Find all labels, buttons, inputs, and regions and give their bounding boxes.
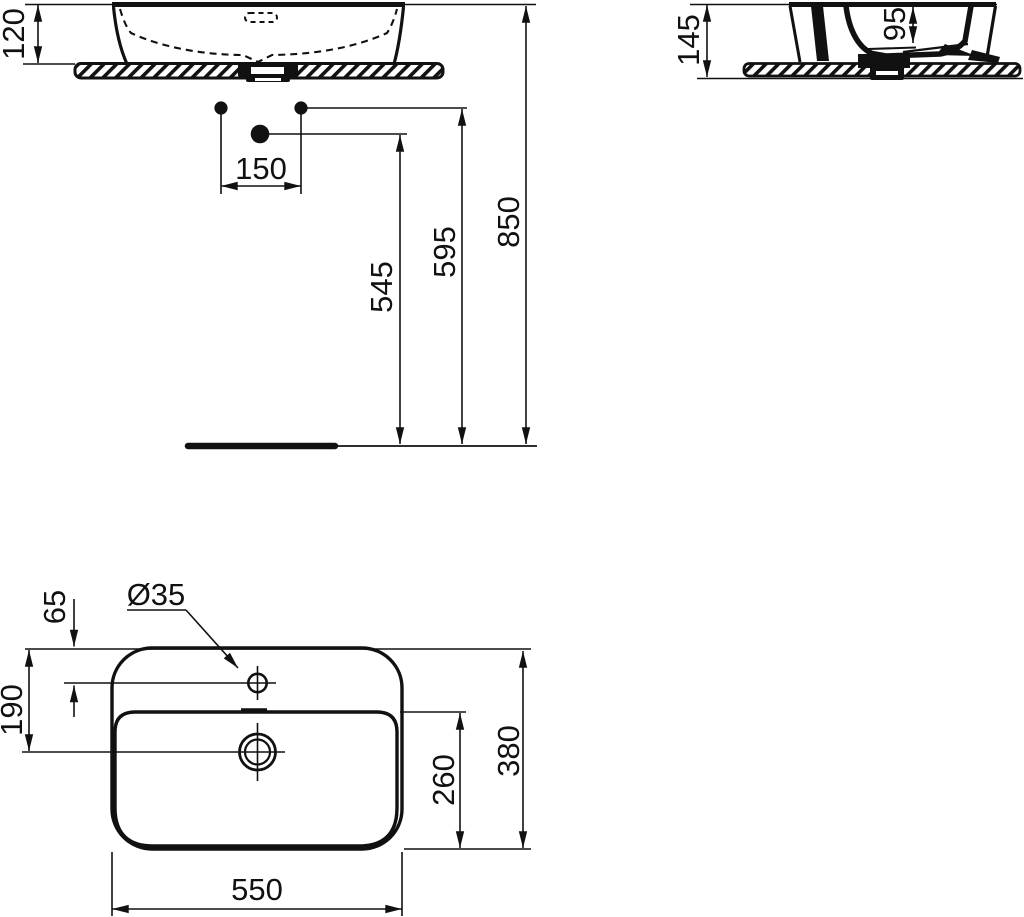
- dim-550: 550: [112, 852, 402, 916]
- callout-dia35-label: Ø35: [127, 577, 186, 612]
- dim-150-label: 150: [235, 151, 287, 186]
- dim-850: 850: [491, 6, 526, 444]
- dim-95-label: 95: [877, 7, 912, 41]
- dim-595-label: 595: [427, 226, 462, 278]
- dim-65: 65: [37, 590, 74, 717]
- front-basin-left-wall: [114, 7, 128, 64]
- dim-380-label: 380: [491, 725, 526, 777]
- callout-dia35-leader: [186, 610, 238, 668]
- side-view: 145 95: [671, 5, 1023, 81]
- plan-inner-bowl-rim: [115, 712, 397, 846]
- dim-65-label: 65: [37, 590, 72, 624]
- front-waste-fitting: [238, 64, 298, 82]
- dim-120-label: 120: [0, 8, 31, 60]
- front-bowl-hidden-contour: [120, 9, 397, 62]
- dim-95: 95: [877, 7, 913, 43]
- dim-850-label: 850: [491, 196, 526, 248]
- plan-view: Ø35 65 190 260 380: [0, 577, 531, 916]
- dim-150: 150: [221, 151, 301, 186]
- dim-190: 190: [0, 650, 29, 751]
- dim-550-label: 550: [231, 872, 283, 907]
- side-waste-flange-line: [868, 48, 916, 50]
- side-left-outer-wall: [790, 6, 800, 62]
- dim-190-label: 190: [0, 684, 29, 736]
- dim-545: 545: [364, 135, 400, 444]
- side-rear-wall-section: [811, 6, 829, 61]
- front-view: 120 150 545 595 850: [0, 5, 537, 447]
- side-right-foot: [968, 50, 1000, 63]
- front-basin-right-wall: [394, 7, 404, 64]
- dim-595: 595: [427, 109, 462, 444]
- washbasin-technical-drawing: 120 150 545 595 850: [0, 0, 1024, 917]
- callout-dia35: Ø35: [127, 577, 238, 668]
- technical-drawing-sheet: 120 150 545 595 850: [0, 0, 1024, 917]
- dim-260-label: 260: [426, 754, 461, 806]
- dim-545-label: 545: [364, 261, 399, 313]
- dim-145-label: 145: [671, 14, 706, 66]
- dim-380: 380: [404, 651, 531, 849]
- dim-260: 260: [400, 712, 466, 848]
- dim-145: 145: [671, 5, 707, 77]
- front-overflow-slot: [245, 13, 277, 22]
- front-fixing-dot-left: [214, 101, 227, 114]
- side-right-outer-wall: [987, 6, 996, 57]
- dim-120: 120: [0, 5, 75, 64]
